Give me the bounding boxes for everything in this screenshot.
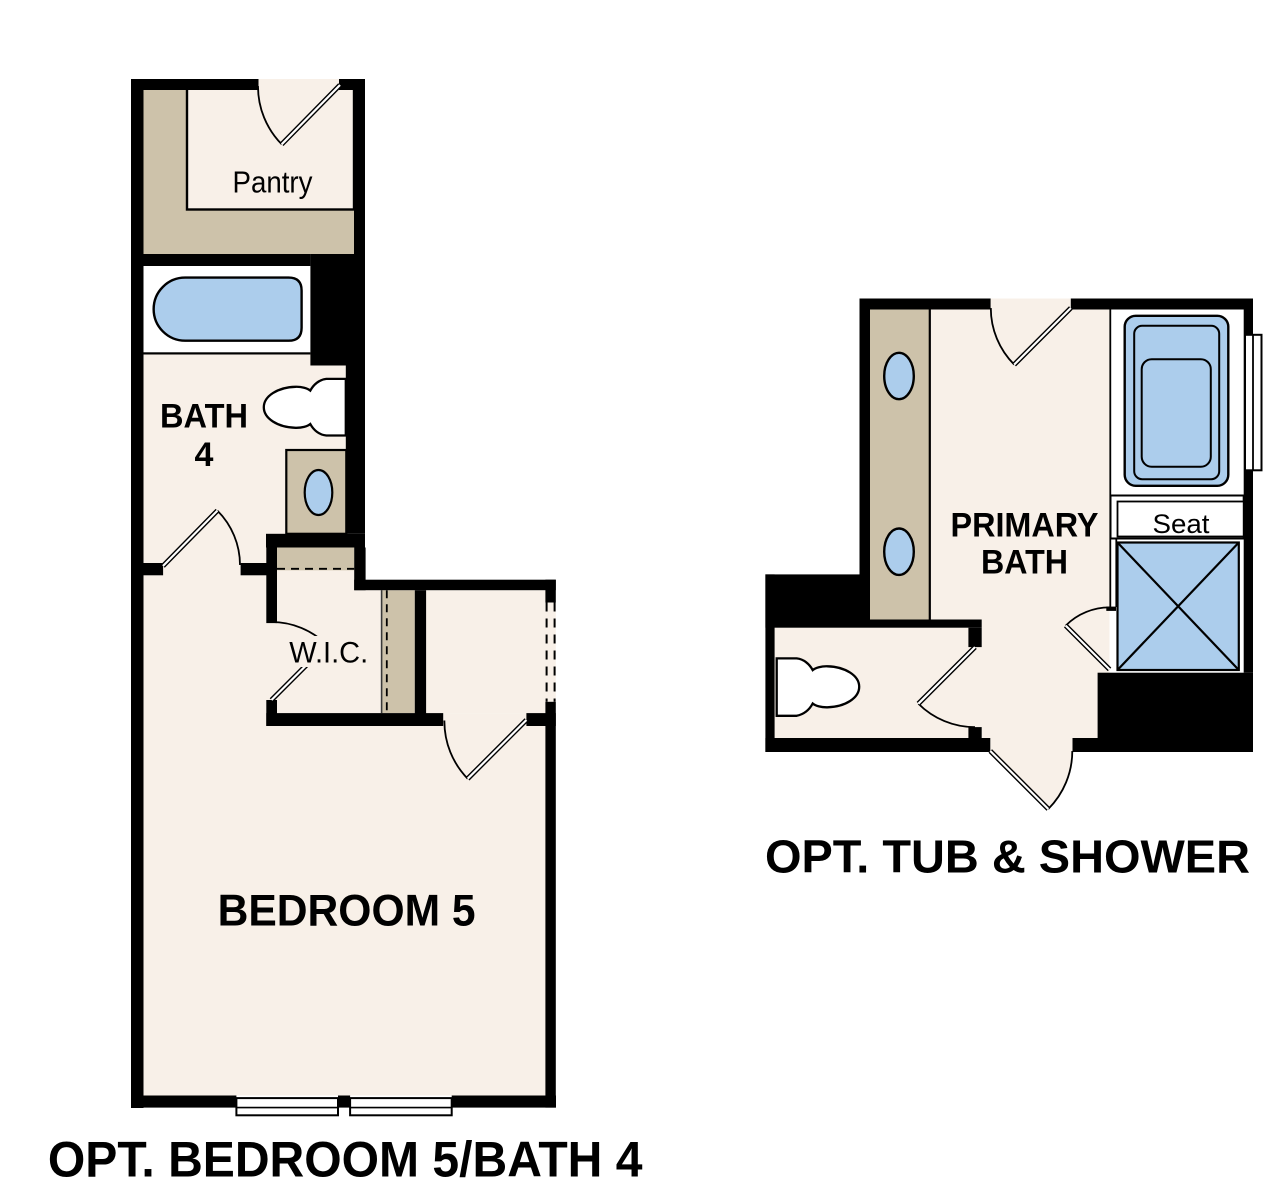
svg-text:BATH: BATH: [981, 544, 1068, 582]
svg-text:Pantry: Pantry: [233, 165, 313, 200]
svg-text:OPT. BEDROOM 5/BATH 4: OPT. BEDROOM 5/BATH 4: [48, 1131, 643, 1187]
svg-text:W.I.C.: W.I.C.: [289, 637, 368, 670]
svg-text:Seat: Seat: [1153, 509, 1211, 539]
svg-text:PRIMARY: PRIMARY: [951, 507, 1099, 545]
svg-text:4: 4: [195, 436, 214, 474]
svg-text:OPT. TUB & SHOWER: OPT. TUB & SHOWER: [765, 831, 1250, 883]
svg-text:BEDROOM 5: BEDROOM 5: [218, 887, 476, 936]
svg-text:BATH: BATH: [160, 397, 248, 435]
